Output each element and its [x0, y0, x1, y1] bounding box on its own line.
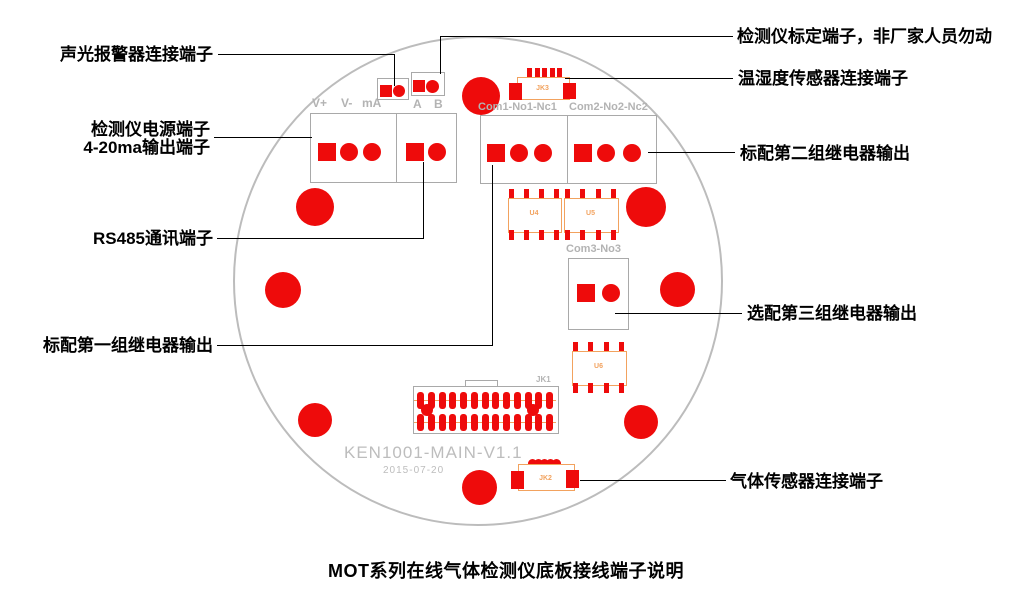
terminal-pad-a [406, 143, 424, 161]
jk3-label: JK3 [517, 85, 568, 92]
callout-relay3: 选配第三组继电器输出 [747, 305, 917, 323]
callout-calibration: 检测仪标定端子，非厂家人员勿动 [737, 28, 992, 46]
mounting-hole [462, 470, 497, 505]
wiring-diagram: V+ V- mA A B Com1-No1-Nc1 Com2-No2-Nc2 C… [0, 0, 1028, 608]
leader-calibration-h [441, 36, 733, 37]
jk1-hole-left [421, 404, 433, 416]
leader-calibration-v [440, 36, 441, 74]
mounting-hole [298, 403, 332, 437]
terminal-pad-com1 [487, 144, 505, 162]
callout-temp-humidity: 温湿度传感器连接端子 [738, 70, 908, 88]
silk-com3-no3: Com3-No3 [566, 243, 621, 255]
silk-com2-no2-nc2: Com2-No2-Nc2 [569, 101, 648, 113]
leader-relay1-h [217, 345, 493, 346]
callout-power-line2: 4-20ma输出端子 [83, 139, 210, 157]
terminal-pad-no3 [602, 284, 620, 302]
leader-relay1-v [492, 165, 493, 346]
silk-vplus: V+ [312, 96, 327, 110]
jk1-hole-right [527, 404, 539, 416]
callout-rs485: RS485通讯端子 [93, 230, 213, 248]
terminal-pad-b [428, 143, 446, 161]
callout-relay2: 标配第二组继电器输出 [740, 145, 910, 163]
leader-alarm-h [218, 54, 394, 55]
alarm-pad-round [393, 85, 405, 97]
mounting-hole [660, 272, 695, 307]
diagram-title: MOT系列在线气体检测仪底板接线端子说明 [328, 557, 684, 583]
u5-label: U5 [564, 210, 617, 217]
silk-com1-no1-nc1: Com1-No1-Nc1 [478, 101, 557, 113]
leader-gas-h [580, 480, 726, 481]
terminal-pad-com3 [577, 284, 595, 302]
mounting-hole [296, 188, 334, 226]
callout-power: 检测仪电源端子 4-20ma输出端子 [83, 121, 210, 157]
mounting-hole [626, 187, 666, 227]
u5-pins-bottom [565, 230, 616, 240]
jk1-label: JK1 [536, 375, 551, 384]
board-date: 2015-07-20 [383, 465, 444, 476]
terminal-pad-ma [363, 143, 381, 161]
leader-rs485-h [217, 238, 424, 239]
terminal-pad-vminus [340, 143, 358, 161]
mounting-hole [624, 405, 658, 439]
u6-pins-bottom [573, 383, 624, 393]
jk1-pins-bottom [417, 414, 553, 431]
block-divider [396, 114, 397, 182]
board-name: KEN1001-MAIN-V1.1 [344, 443, 523, 463]
calibration-pad-square [413, 80, 425, 92]
terminal-pad-no1 [510, 144, 528, 162]
leader-relay2-h [648, 152, 735, 153]
terminal-pad-nc2 [623, 144, 641, 162]
alarm-pad-square [380, 85, 392, 97]
leader-alarm-v [394, 54, 395, 86]
calibration-pad-round [426, 80, 439, 93]
u4-label: U4 [508, 210, 560, 217]
leader-rs485-v [423, 162, 424, 239]
silk-a: A [413, 97, 422, 111]
leader-temp-h [565, 78, 733, 79]
u4-pins-bottom [509, 230, 559, 240]
terminal-pad-vplus [318, 143, 336, 161]
u6-label: U6 [572, 363, 625, 370]
terminal-pad-com2 [574, 144, 592, 162]
callout-power-line1: 检测仪电源端子 [83, 121, 210, 139]
silk-b: B [434, 97, 443, 111]
block-divider [567, 116, 568, 183]
leader-power-h [214, 137, 312, 138]
mounting-hole [265, 272, 301, 308]
silk-vminus: V- [341, 96, 352, 110]
terminal-pad-no2 [597, 144, 615, 162]
callout-gas: 气体传感器连接端子 [730, 473, 883, 491]
jk2-label: JK2 [518, 475, 573, 482]
leader-relay3-h [615, 313, 742, 314]
callout-relay1: 标配第一组继电器输出 [43, 337, 213, 355]
callout-alarm: 声光报警器连接端子 [60, 46, 213, 64]
terminal-pad-nc1 [534, 144, 552, 162]
